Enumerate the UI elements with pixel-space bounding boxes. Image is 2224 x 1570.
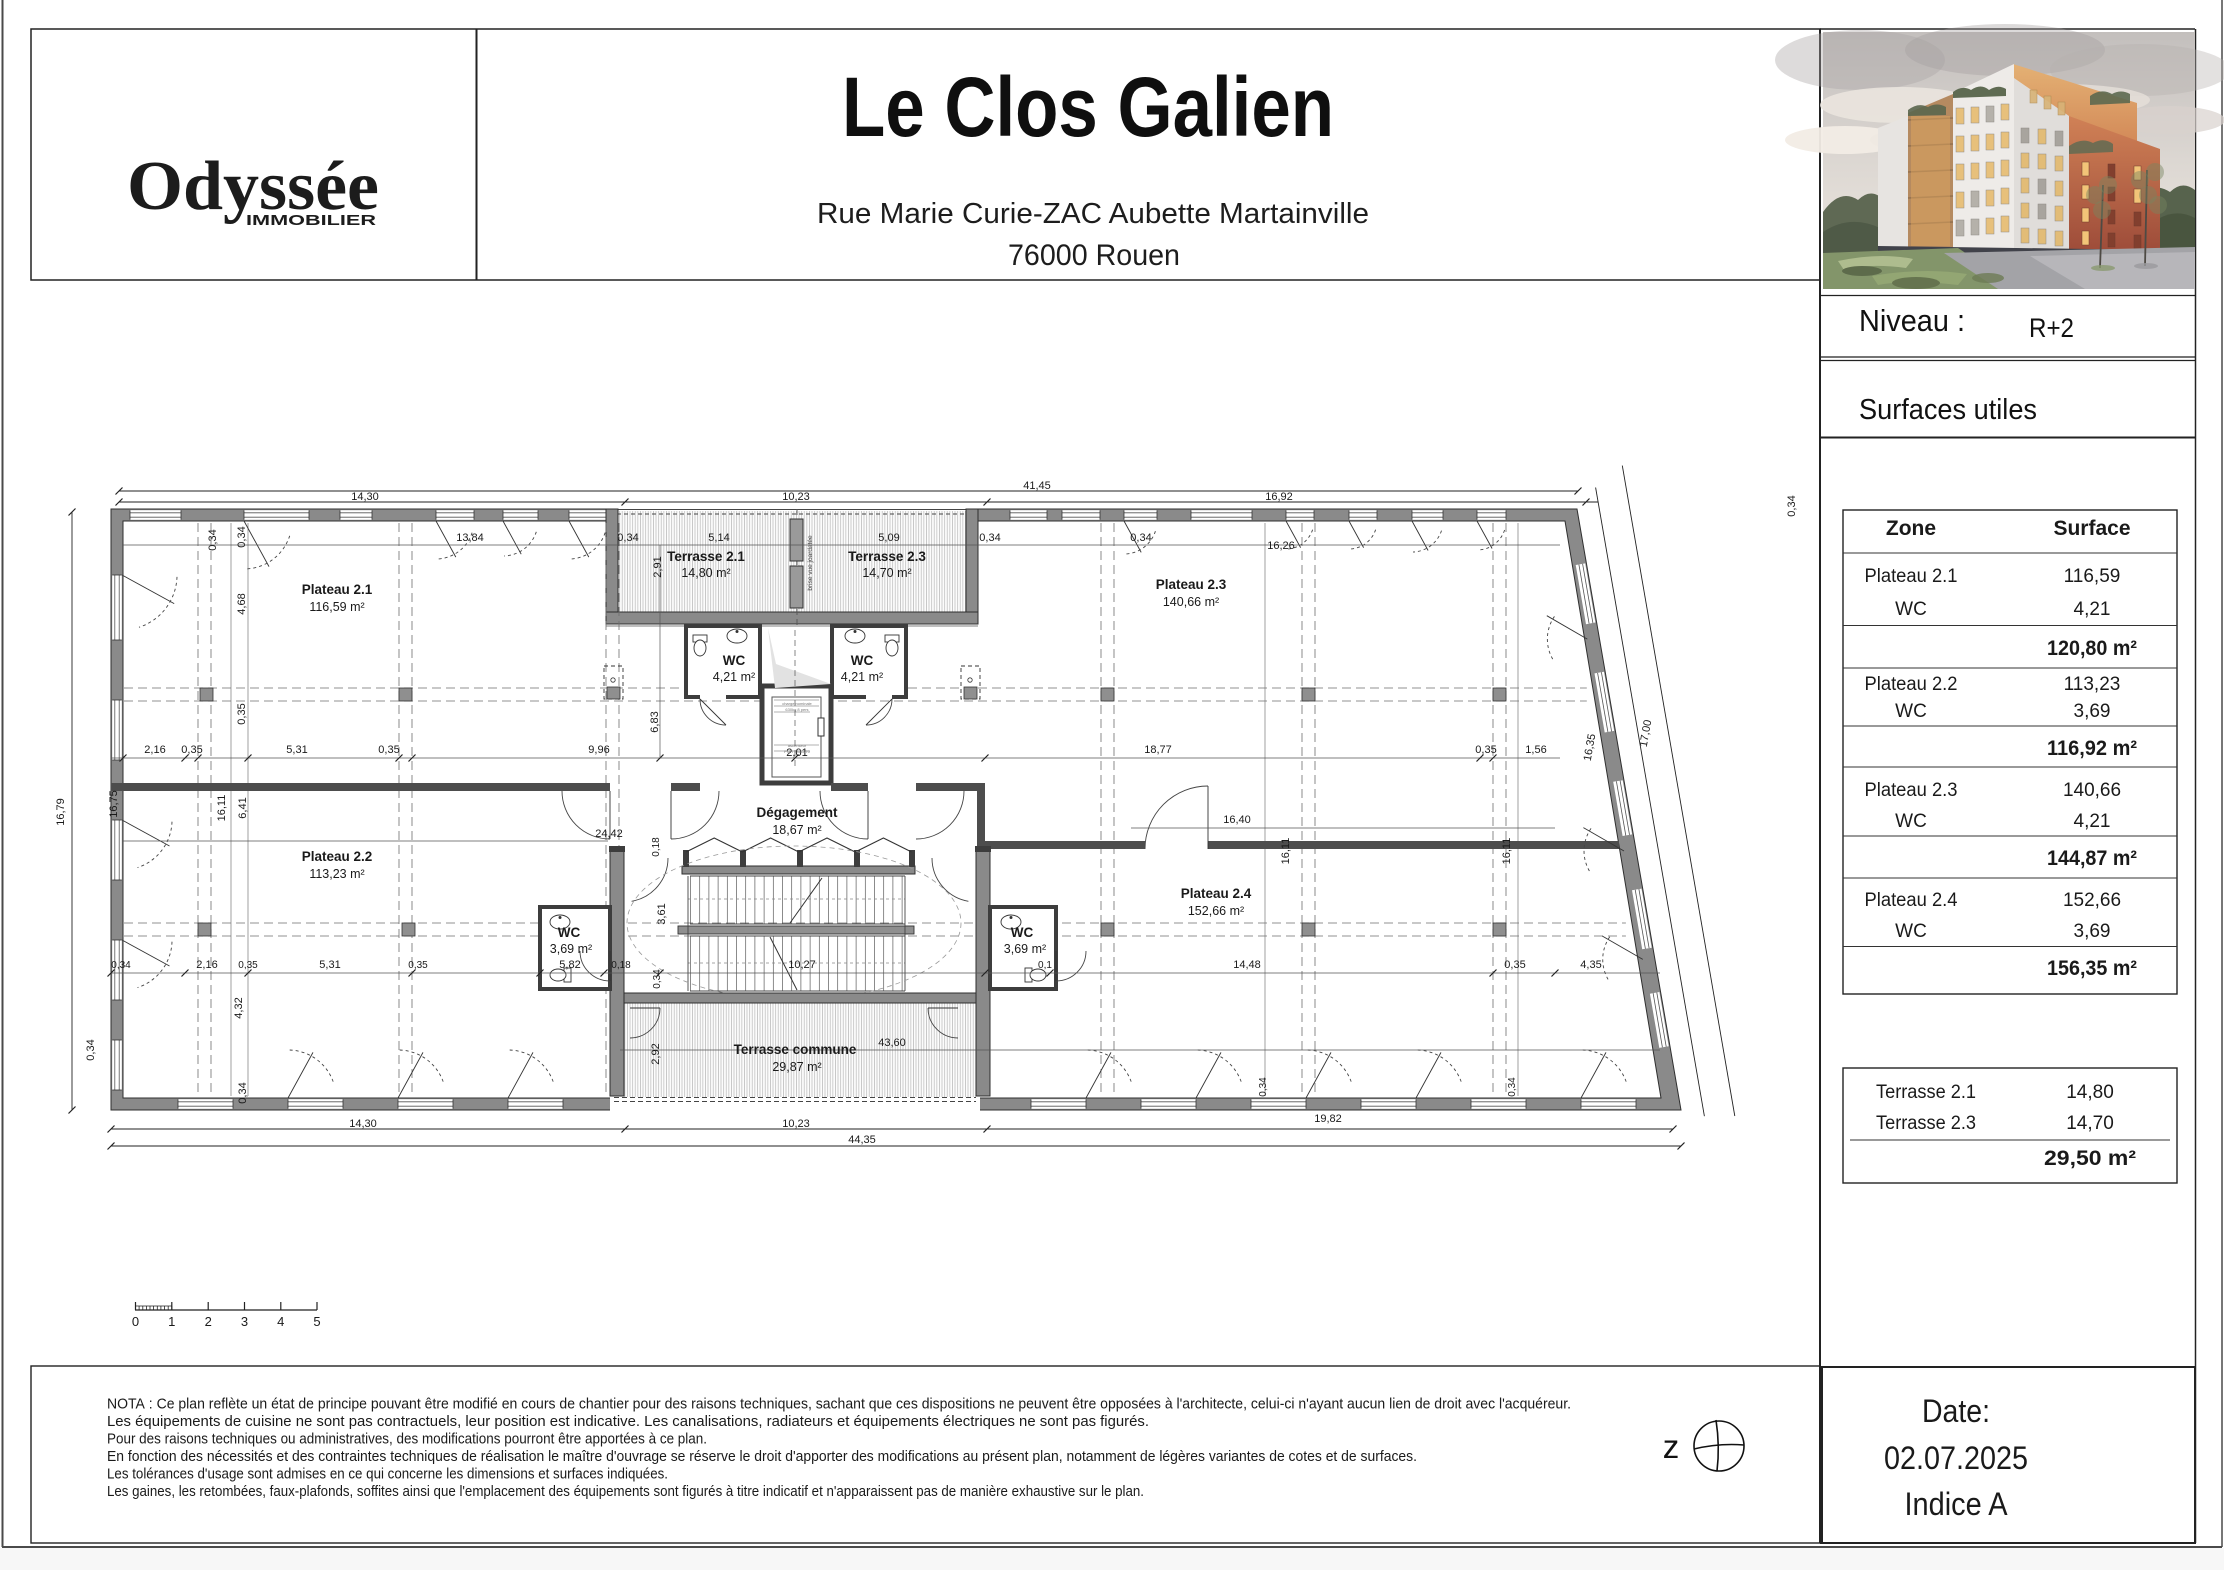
svg-text:0,35: 0,35 — [1504, 959, 1525, 971]
svg-text:0,34: 0,34 — [1130, 532, 1151, 544]
svg-text:140,66 m²: 140,66 m² — [1163, 595, 1219, 609]
svg-text:44,35: 44,35 — [848, 1134, 876, 1146]
svg-text:1,56: 1,56 — [1525, 744, 1546, 756]
svg-text:16,40: 16,40 — [1223, 814, 1251, 826]
svg-text:2,91: 2,91 — [652, 556, 664, 577]
svg-text:630kg 8 pers: 630kg 8 pers — [785, 707, 808, 712]
svg-text:Surface: Surface — [2053, 517, 2130, 540]
svg-text:WC: WC — [1895, 811, 1927, 832]
svg-text:6,41: 6,41 — [237, 797, 249, 818]
svg-text:Plateau 2.4: Plateau 2.4 — [1181, 886, 1252, 901]
svg-text:5,82: 5,82 — [559, 959, 580, 971]
svg-text:brise vue joardatée: brise vue joardatée — [807, 535, 814, 591]
svg-text:0,35: 0,35 — [238, 960, 258, 971]
svg-text:16,26: 16,26 — [1267, 540, 1295, 552]
svg-text:43,60: 43,60 — [878, 1037, 906, 1049]
svg-text:10,23: 10,23 — [782, 491, 810, 503]
svg-text:Le Clos Galien: Le Clos Galien — [842, 60, 1334, 154]
svg-text:0,34: 0,34 — [617, 532, 638, 544]
svg-text:4,32: 4,32 — [233, 997, 245, 1018]
svg-text:Niveau :: Niveau : — [1859, 303, 1965, 338]
svg-text:NOTA : Ce plan reflète un état: NOTA : Ce plan reflète un état de princi… — [107, 1396, 1571, 1413]
svg-text:18,77: 18,77 — [1144, 744, 1172, 756]
svg-text:152,66 m²: 152,66 m² — [1188, 904, 1244, 918]
svg-text:14,48: 14,48 — [1233, 959, 1261, 971]
svg-text:0,34: 0,34 — [1258, 1077, 1269, 1097]
svg-text:116,59: 116,59 — [2064, 566, 2121, 587]
svg-text:152,66: 152,66 — [2063, 890, 2121, 911]
svg-text:16,11: 16,11 — [1280, 838, 1292, 865]
svg-text:Terrasse 2.3: Terrasse 2.3 — [1876, 1113, 1976, 1134]
svg-text:Pour des raisons techniques ou: Pour des raisons techniques ou administr… — [107, 1431, 707, 1448]
svg-text:14,80 m²: 14,80 m² — [681, 566, 730, 580]
svg-text:116,92 m²: 116,92 m² — [2047, 737, 2137, 760]
svg-text:WC: WC — [558, 925, 581, 940]
svg-text:156,35 m²: 156,35 m² — [2047, 957, 2137, 980]
svg-text:02.07.2025: 02.07.2025 — [1884, 1440, 2028, 1476]
svg-text:14,80: 14,80 — [2066, 1082, 2114, 1103]
svg-text:Terrasse 2.1: Terrasse 2.1 — [667, 549, 745, 564]
svg-text:charge nominale: charge nominale — [782, 701, 812, 706]
svg-text:10,27: 10,27 — [788, 959, 816, 971]
svg-text:120,80 m²: 120,80 m² — [2047, 637, 2137, 660]
svg-text:14,30: 14,30 — [349, 1118, 377, 1130]
svg-text:WC: WC — [1011, 925, 1034, 940]
svg-text:14,30: 14,30 — [351, 491, 379, 503]
svg-text:4,21 m²: 4,21 m² — [841, 670, 883, 684]
svg-text:3,69: 3,69 — [2074, 921, 2111, 942]
svg-text:0,35: 0,35 — [1475, 744, 1496, 756]
svg-text:R+2: R+2 — [2029, 313, 2074, 343]
svg-text:Surfaces utiles: Surfaces utiles — [1859, 394, 2037, 426]
svg-text:16,92: 16,92 — [1265, 491, 1293, 503]
svg-text:0,34: 0,34 — [85, 1039, 97, 1060]
svg-text:2,16: 2,16 — [144, 744, 165, 756]
svg-text:3,69 m²: 3,69 m² — [1004, 942, 1046, 956]
svg-text:3: 3 — [241, 1314, 248, 1329]
svg-text:0,34: 0,34 — [979, 532, 1000, 544]
svg-text:Plateau 2.3: Plateau 2.3 — [1156, 577, 1227, 592]
svg-text:0,18: 0,18 — [651, 837, 662, 857]
svg-text:Plateau 2.3: Plateau 2.3 — [1865, 780, 1958, 801]
svg-text:0,34: 0,34 — [111, 960, 131, 971]
svg-text:Les gaines, les retombées, fau: Les gaines, les retombées, faux-plafonds… — [107, 1483, 1144, 1500]
svg-text:4,21: 4,21 — [2074, 811, 2111, 832]
svg-text:Terrasse commune: Terrasse commune — [734, 1042, 857, 1057]
svg-text:Plateau 2.1: Plateau 2.1 — [1865, 566, 1958, 587]
svg-text:140,66: 140,66 — [2063, 780, 2121, 801]
svg-text:9,96: 9,96 — [588, 744, 609, 756]
svg-text:6,83: 6,83 — [649, 711, 661, 732]
svg-text:5,31: 5,31 — [286, 744, 307, 756]
svg-text:16,79: 16,79 — [55, 798, 67, 826]
svg-text:3,69 m²: 3,69 m² — [550, 942, 592, 956]
svg-text:0,34: 0,34 — [1786, 495, 1798, 516]
svg-text:Terrasse 2.1: Terrasse 2.1 — [1876, 1082, 1976, 1103]
svg-text:14,70 m²: 14,70 m² — [862, 566, 911, 580]
svg-text:Plateau 2.1: Plateau 2.1 — [302, 582, 373, 597]
svg-text:2,92: 2,92 — [650, 1043, 662, 1064]
svg-text:5,09: 5,09 — [878, 532, 899, 544]
svg-text:0: 0 — [132, 1314, 139, 1329]
svg-text:Indice A: Indice A — [1905, 1486, 2009, 1522]
svg-text:Plateau 2.2: Plateau 2.2 — [302, 849, 373, 864]
svg-text:76000 Rouen: 76000 Rouen — [1008, 239, 1180, 272]
svg-text:41,45: 41,45 — [1023, 480, 1051, 492]
svg-text:PMR EN81-70: PMR EN81-70 — [784, 749, 811, 754]
svg-text:0,1: 0,1 — [1038, 960, 1052, 971]
svg-text:5,31: 5,31 — [319, 959, 340, 971]
svg-text:0,34: 0,34 — [1507, 1077, 1518, 1097]
svg-text:4,21: 4,21 — [2074, 599, 2111, 620]
svg-text:5: 5 — [313, 1314, 320, 1329]
svg-text:Dégagement: Dégagement — [756, 805, 838, 820]
svg-text:4: 4 — [277, 1314, 284, 1329]
svg-text:IMMOBILIER: IMMOBILIER — [246, 212, 376, 229]
svg-text:113,23: 113,23 — [2064, 674, 2121, 695]
svg-text:WC: WC — [1895, 921, 1927, 942]
svg-text:WC: WC — [1895, 599, 1927, 620]
svg-text:0,35: 0,35 — [236, 703, 248, 724]
svg-text:0,35: 0,35 — [378, 744, 399, 756]
svg-text:4,68: 4,68 — [236, 593, 248, 614]
svg-text:3,61: 3,61 — [656, 903, 668, 924]
svg-text:En fonction des nécessités et: En fonction des nécessités et des contra… — [107, 1448, 1417, 1465]
svg-text:29,87 m²: 29,87 m² — [772, 1060, 821, 1074]
svg-text:z: z — [1663, 1428, 1680, 1465]
svg-text:3,69: 3,69 — [2074, 701, 2111, 722]
svg-text:Rue Marie Curie-ZAC Aubette Ma: Rue Marie Curie-ZAC Aubette Martainville — [817, 198, 1369, 230]
svg-text:10,23: 10,23 — [782, 1118, 810, 1130]
svg-text:WC: WC — [1895, 701, 1927, 722]
svg-text:ascenseur: ascenseur — [788, 743, 807, 748]
svg-text:Date:: Date: — [1922, 1393, 1990, 1429]
svg-text:5,14: 5,14 — [708, 532, 729, 544]
svg-text:4,21 m²: 4,21 m² — [713, 670, 755, 684]
svg-text:13,84: 13,84 — [456, 532, 484, 544]
svg-text:2: 2 — [205, 1314, 212, 1329]
svg-text:0,34: 0,34 — [652, 969, 663, 989]
svg-text:24,42: 24,42 — [595, 828, 623, 840]
svg-text:4,35: 4,35 — [1580, 959, 1601, 971]
svg-text:Plateau 2.2: Plateau 2.2 — [1865, 674, 1958, 695]
svg-text:29,50 m²: 29,50 m² — [2044, 1147, 2136, 1170]
svg-text:Les tolérances d'usage sont ad: Les tolérances d'usage sont admises en c… — [107, 1466, 668, 1483]
svg-text:0,34: 0,34 — [207, 529, 219, 550]
svg-text:14,70: 14,70 — [2066, 1113, 2114, 1134]
svg-text:0,35: 0,35 — [181, 744, 202, 756]
svg-text:1: 1 — [168, 1314, 175, 1329]
svg-text:Terrasse 2.3: Terrasse 2.3 — [848, 549, 926, 564]
svg-text:2,16: 2,16 — [196, 959, 217, 971]
svg-text:113,23 m²: 113,23 m² — [309, 867, 364, 881]
svg-text:19,82: 19,82 — [1314, 1113, 1342, 1125]
svg-text:116,59 m²: 116,59 m² — [309, 600, 364, 614]
svg-text:Plateau 2.4: Plateau 2.4 — [1865, 890, 1958, 911]
svg-text:WC: WC — [723, 653, 746, 668]
svg-text:16,75: 16,75 — [108, 790, 120, 818]
svg-text:0,34: 0,34 — [237, 1082, 249, 1103]
svg-text:0,18: 0,18 — [611, 960, 631, 971]
svg-text:WC: WC — [851, 653, 874, 668]
svg-text:0,34: 0,34 — [236, 526, 248, 547]
svg-text:144,87 m²: 144,87 m² — [2047, 847, 2137, 870]
svg-text:0,35: 0,35 — [408, 960, 428, 971]
svg-text:16,11: 16,11 — [216, 795, 228, 822]
svg-text:18,67 m²: 18,67 m² — [772, 823, 821, 837]
svg-text:Zone: Zone — [1886, 517, 1936, 540]
svg-text:Les équipements de cuisine ne: Les équipements de cuisine ne sont pas c… — [107, 1413, 1149, 1430]
svg-text:16,11: 16,11 — [1501, 838, 1513, 865]
